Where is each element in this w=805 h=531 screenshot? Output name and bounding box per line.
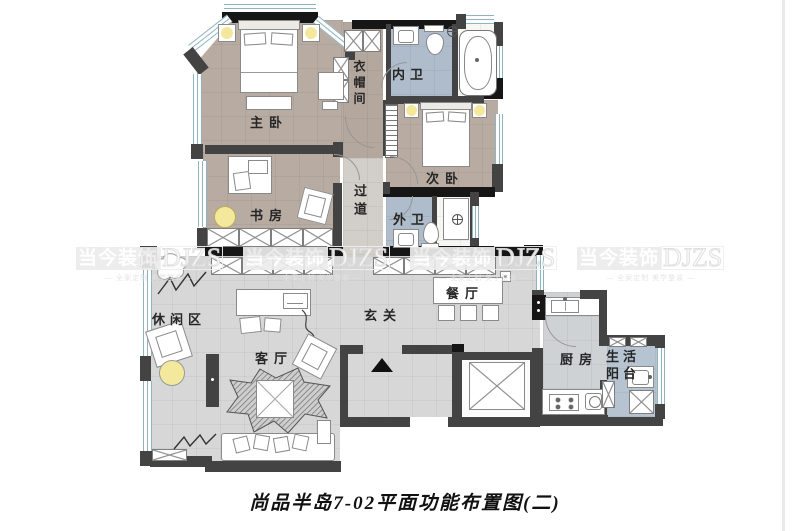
room-label-foyer: 玄关: [364, 305, 402, 324]
cabinet-knob: [504, 275, 507, 278]
oven-dot: [537, 309, 540, 312]
room-label-inner-bathroom: 内卫: [392, 64, 428, 83]
watermark: 当今装饰DJZS — 全案定制 美学整装 —: [577, 246, 724, 283]
deco-dot: [211, 378, 214, 381]
entry-direction-arrow: [371, 358, 393, 372]
wardrobe-cell: [303, 228, 333, 247]
pillow: [271, 32, 294, 46]
room-label-utility-balcony: 生活阳台: [606, 348, 648, 382]
wall-kitchen-bottom: [532, 415, 608, 426]
room-label-second-bedroom: 次卧: [426, 168, 464, 187]
wall-corridor-right-2: [383, 182, 390, 194]
cabinet-cell: [273, 257, 304, 275]
window-secondbed-right: [495, 114, 503, 164]
lamp: [474, 105, 485, 116]
window-balcony-right: [657, 348, 665, 404]
sofa-pillow: [273, 436, 290, 453]
dresser: [318, 72, 344, 100]
oven-dot: [537, 301, 540, 304]
wall-balcony-bottom: [605, 417, 663, 426]
room-label-study: 书房: [250, 205, 288, 224]
round-side-table: [159, 360, 185, 386]
zigzag-decor: [156, 270, 210, 298]
coffee-table: [256, 380, 294, 418]
cooktop: [549, 394, 579, 411]
balcony-cabinet-x: [630, 337, 647, 347]
sofa-pillow: [253, 434, 270, 451]
basin-bowl: [398, 233, 414, 246]
dining-chair: [482, 305, 499, 321]
room-label-living-room: 客厅: [255, 348, 293, 367]
blanket-line: [241, 72, 297, 73]
window-master-left: [193, 74, 202, 144]
elevator-shaft: [469, 362, 525, 410]
lamp: [221, 27, 233, 39]
cabinet-cell: [404, 257, 435, 275]
wall-elevator-left: [452, 352, 462, 420]
wall-hall-left: [340, 352, 348, 424]
room-label-corridor: 过道: [350, 184, 369, 220]
wall-segment: [140, 356, 151, 381]
window-leisure-left2: [143, 381, 152, 451]
cabinet-cell: [304, 257, 333, 275]
window-shower-right: [472, 206, 479, 238]
basin-tap: [648, 375, 652, 379]
dining-chair: [438, 305, 455, 321]
faucet: [563, 297, 567, 301]
room-label-cloakroom: 衣帽间: [351, 60, 368, 108]
window-study-left: [198, 161, 207, 227]
shower-head-icon: [447, 26, 458, 37]
study-monitor: [248, 160, 268, 174]
kitchen-sink: [551, 300, 579, 313]
wall-hall-bottom-left: [340, 417, 410, 427]
bed-bench: [246, 96, 292, 110]
lamp: [406, 105, 417, 116]
oven-column: [532, 295, 546, 320]
study-round-table: [214, 206, 236, 228]
wardrobe-cell: [207, 228, 239, 247]
speaker: [263, 317, 281, 332]
lamp: [305, 27, 317, 39]
wall-elevator-top: [460, 352, 540, 360]
tub-drain: [475, 58, 479, 62]
cloak-cabinet: [363, 30, 381, 52]
watermark-brand: 当今装饰: [577, 247, 661, 270]
room-label-outer-bathroom: 外卫: [393, 209, 429, 228]
pillow: [426, 111, 445, 122]
cabinet-cell: [242, 257, 273, 275]
window-tub-top: [466, 15, 494, 24]
bathtub-inner: [464, 36, 492, 90]
washing-machine: [629, 390, 654, 414]
wall-segment: [386, 24, 391, 100]
cabinet-cell: [211, 257, 242, 275]
room-label-leisure-area: 休闲区: [152, 309, 206, 328]
cabinet-cell: [466, 257, 496, 275]
cabinet-cell: [435, 257, 466, 275]
cabinet-cell: [373, 257, 404, 275]
page-edge-line: [782, 0, 785, 531]
pillow: [244, 32, 267, 46]
cloak-cabinet: [344, 30, 363, 52]
toilet-tank: [424, 25, 444, 32]
wall-segment: [191, 144, 203, 159]
wall-master-bottom: [205, 145, 341, 154]
wall-block-bottom-left: [205, 247, 343, 256]
shower-head-icon: [452, 214, 463, 225]
wall-bottom-sofa: [205, 461, 341, 472]
speaker: [239, 316, 262, 334]
appliance-circle: [589, 396, 601, 408]
balcony-cabinet-x: [609, 337, 626, 347]
room-label-master-bedroom: 主卧: [250, 112, 288, 131]
plan-caption: 尚品半岛7-02平面功能布置图(二): [225, 488, 585, 515]
sofa-side-table: [317, 420, 331, 444]
wall-corner: [524, 245, 543, 255]
wall-study-right: [333, 183, 342, 247]
pillow: [448, 111, 467, 122]
watermark-code: DJZS: [661, 246, 724, 270]
room-label-kitchen: 厨房: [560, 349, 598, 368]
watermark-tagline: — 全案定制 美学整装 —: [577, 273, 724, 283]
sofa-pillow: [292, 434, 310, 452]
dining-chair: [460, 305, 477, 321]
wardrobe-cell: [239, 228, 271, 247]
dresser-stool: [322, 101, 338, 110]
tv: [283, 293, 308, 309]
window-dining-right: [536, 255, 544, 290]
shelf-rack: [385, 104, 398, 158]
room-label-dining-room: 餐厅: [446, 283, 484, 302]
balcony-tall-cabinet: [602, 381, 615, 408]
study-chair: [233, 171, 251, 191]
wardrobe-cell: [271, 228, 303, 247]
floor-plan: 主卧 书房 衣帽间 内卫 次卧 过道 外卫 休闲区 客厅 玄关 餐厅 厨房 生活…: [0, 0, 805, 531]
basin-bowl: [398, 30, 414, 43]
zigzag-decor: [172, 432, 218, 452]
wall-segment: [655, 335, 665, 348]
